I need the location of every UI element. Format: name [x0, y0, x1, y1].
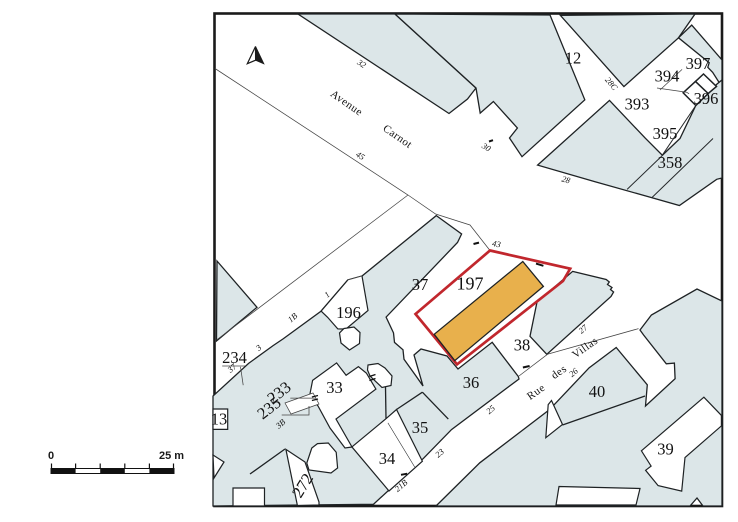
svg-text:197: 197 [457, 274, 484, 294]
svg-text:393: 393 [625, 95, 650, 114]
svg-text:396: 396 [694, 89, 719, 108]
svg-text:13: 13 [211, 410, 228, 429]
svg-text:397: 397 [686, 54, 711, 73]
svg-text:38: 38 [514, 336, 531, 355]
svg-text:0: 0 [48, 450, 54, 462]
svg-text:43: 43 [491, 238, 501, 249]
svg-text:12: 12 [565, 49, 582, 68]
svg-text:35: 35 [412, 418, 429, 437]
svg-text:33: 33 [326, 378, 343, 397]
svg-text:39: 39 [657, 440, 674, 459]
svg-text:395: 395 [653, 124, 678, 143]
svg-text:25 m: 25 m [159, 450, 184, 462]
svg-text:37: 37 [412, 275, 429, 294]
svg-text:40: 40 [589, 382, 606, 401]
svg-text:36: 36 [463, 373, 480, 392]
svg-text:196: 196 [336, 303, 361, 322]
svg-text:234: 234 [222, 348, 247, 367]
svg-text:358: 358 [658, 153, 683, 172]
svg-text:394: 394 [655, 67, 680, 86]
svg-text:34: 34 [379, 449, 396, 468]
